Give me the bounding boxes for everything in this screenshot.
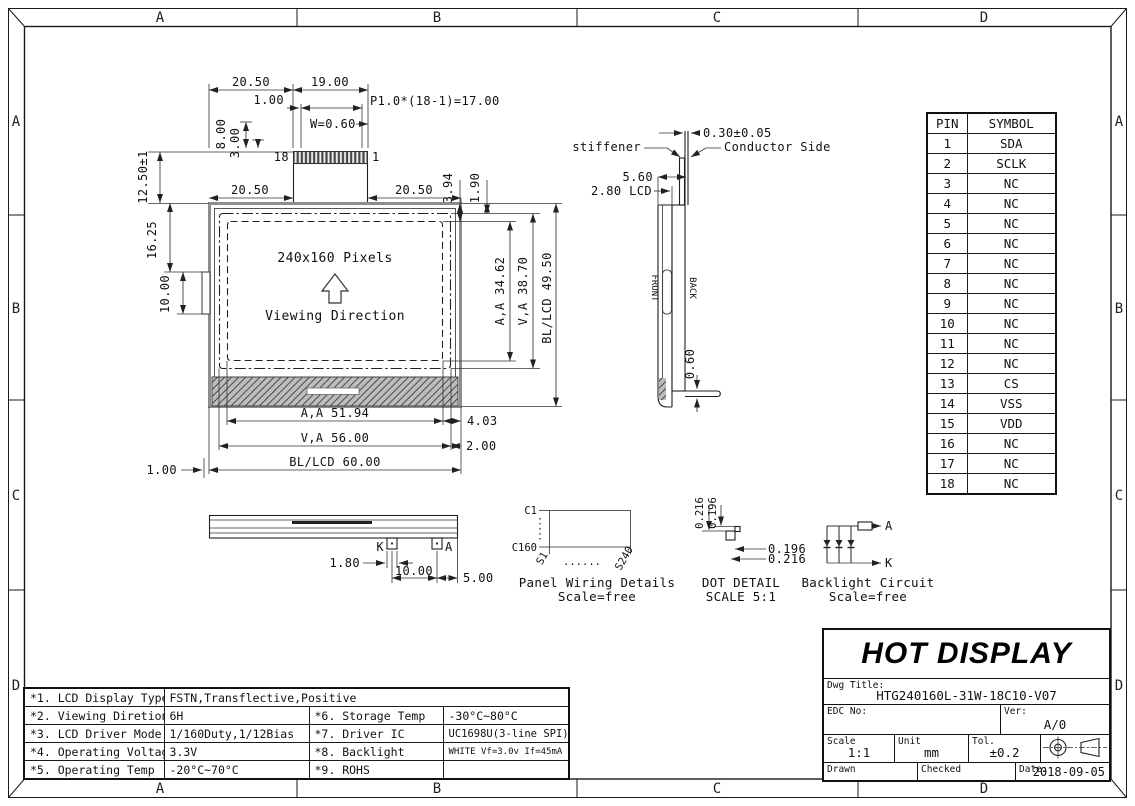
led-icons [824, 540, 855, 548]
wiring-c160-label: C160 [512, 542, 537, 554]
pin-number-cell: 7 [927, 254, 967, 274]
spec-value-cell: 6H [164, 707, 309, 725]
pin-symbol-cell: SCLK [967, 154, 1056, 174]
drawing-sheet: A B C D A B C D A B C D A B C D [0, 0, 1135, 806]
dim-20-50-mid-left: 20.50 [231, 183, 269, 197]
pin-table-row: 14VSS [927, 394, 1056, 414]
zone-label-top-b: B [433, 10, 441, 26]
dim-8-00: 8.00 [214, 119, 228, 150]
checked-cell: Checked [917, 763, 1015, 780]
pin-table-row: 12NC [927, 354, 1056, 374]
zone-label-right-c: C [1115, 488, 1123, 504]
edc-ver-row: EDC No: Ver: A/0 [824, 705, 1109, 735]
pin-number-cell: 15 [927, 414, 967, 434]
pin-table-row: 17NC [927, 454, 1056, 474]
resistor-icon [858, 522, 872, 530]
cathode-label: K [376, 540, 384, 554]
pin-table-row: 11NC [927, 334, 1056, 354]
dim-5-60: 5.60 [623, 170, 654, 184]
pin-number-cell: 12 [927, 354, 967, 374]
pin-symbol-cell: NC [967, 194, 1056, 214]
spec-value-cell [443, 761, 569, 780]
dim-1-00-top: 1.00 [254, 93, 285, 107]
pin-number-cell: 10 [927, 314, 967, 334]
dim-10-00-left: 10.00 [158, 275, 172, 313]
zone-label-bottom-b: B [433, 781, 441, 797]
pin-number-cell: 4 [927, 194, 967, 214]
pin-number-cell: 17 [927, 454, 967, 474]
pin-symbol-cell: NC [967, 294, 1056, 314]
pin-symbol-cell: NC [967, 234, 1056, 254]
spec-table: *1. LCD Display TypeFSTN,Transflective,P… [23, 687, 570, 780]
dim-10-00-bottom: 10.00 [395, 564, 433, 578]
spec-value-cell: 3.3V [164, 743, 309, 761]
drawn-label: Drawn [827, 764, 856, 775]
scale-value: 1:1 [824, 745, 894, 760]
pin-table-row: 2SCLK [927, 154, 1056, 174]
projection-symbol-cell [1040, 735, 1109, 762]
pin-symbol-cell: VDD [967, 414, 1056, 434]
pin-number-cell: 8 [927, 274, 967, 294]
circuit-anode-label: A [885, 519, 893, 533]
pin-table: PIN SYMBOL 1SDA2SCLK3NC4NC5NC6NC7NC8NC9N… [926, 112, 1057, 495]
zone-label-right-a: A [1115, 114, 1124, 130]
date-value: 2018-09-05 [1033, 765, 1105, 779]
scale-cell: Scale 1:1 [824, 735, 894, 762]
company-name: HOT DISPLAY [824, 630, 1109, 679]
pin-symbol-cell: NC [967, 314, 1056, 334]
wiring-dots: ...... [563, 556, 601, 568]
backlight-circuit-caption: Backlight Circuit [801, 575, 934, 590]
spec-table-row: *1. LCD Display TypeFSTN,Transflective,P… [24, 688, 569, 707]
pin-number-cell: 1 [927, 134, 967, 154]
scale-unit-tol-row: Scale 1:1 Unit mm Tol. ±0.2 [824, 735, 1109, 763]
pin-header: PIN [927, 113, 967, 134]
pin-1-label: 1 [372, 150, 380, 164]
pin-table-row: 7NC [927, 254, 1056, 274]
dot-detail: 0.216 0.196 0.196 0.216 DOT DETAIL SCALE… [694, 497, 806, 604]
pin-number-cell: 5 [927, 214, 967, 234]
pin-symbol-cell: NC [967, 274, 1056, 294]
pin-number-cell: 16 [927, 434, 967, 454]
panel-wiring-scale: Scale=free [558, 589, 636, 604]
zone-label-bottom-a: A [156, 781, 165, 797]
pin-number-cell: 2 [927, 154, 967, 174]
zone-label-right-d: D [1115, 678, 1123, 694]
pin-table-row: 16NC [927, 434, 1056, 454]
spec-value-cell: UC1698U(3-line SPI) [443, 725, 569, 743]
spec-value-cell: 1/160Duty,1/12Bias [164, 725, 309, 743]
pin-symbol-cell: NC [967, 254, 1056, 274]
dim-bl-60-00: BL/LCD 60.00 [289, 455, 381, 469]
pin-number-cell: 18 [927, 474, 967, 495]
dim-1-80: 1.80 [330, 556, 361, 570]
pin-number-cell: 3 [927, 174, 967, 194]
pin-table-row: 9NC [927, 294, 1056, 314]
zone-label-left-a: A [12, 114, 21, 130]
anode-label: A [445, 540, 453, 554]
version-label: Ver: [1004, 706, 1027, 717]
pin-number-cell: 11 [927, 334, 967, 354]
zone-label-left-b: B [12, 301, 20, 317]
viewing-direction-label: Viewing Direction [265, 309, 405, 324]
pin-table-row: 8NC [927, 274, 1056, 294]
stiffener-label: stiffener [572, 140, 641, 154]
dim-12-50: 12.50±1 [136, 150, 150, 203]
pin-table-row: 6NC [927, 234, 1056, 254]
spec-label-cell: *1. LCD Display Type [24, 688, 164, 707]
dot-detail-scale: SCALE 5:1 [706, 589, 776, 604]
pin-table-row: 18NC [927, 474, 1056, 495]
spec-label-cell: *8. Backlight [309, 743, 443, 761]
date-cell: Date: 2018-09-05 [1015, 763, 1109, 780]
backlight-circuit: A K Backlight Circuit Scale=free [801, 519, 934, 604]
pin-number-cell: 13 [927, 374, 967, 394]
spec-label-cell: *4. Operating Voltage [24, 743, 164, 761]
spec-label-cell: *9. ROHS [309, 761, 443, 780]
panel-wiring-caption: Panel Wiring Details [519, 575, 676, 590]
dim-19-00: 19.00 [311, 75, 349, 89]
spec-label-cell: *7. Driver IC [309, 725, 443, 743]
pin-symbol-cell: VSS [967, 394, 1056, 414]
dwg-title-row: Dwg Title: HTG240160L-31W-18C10-V07 [824, 679, 1109, 705]
zone-label-left-d: D [12, 678, 20, 694]
zone-label-top-c: C [713, 10, 721, 26]
unit-value: mm [895, 745, 968, 760]
pin-symbol-cell: NC [967, 174, 1056, 194]
dim-16-25: 16.25 [145, 221, 159, 259]
dim-20-50-mid-right: 20.50 [395, 183, 433, 197]
pin-table-row: 1SDA [927, 134, 1056, 154]
pin-table-row: 5NC [927, 214, 1056, 234]
dot-detail-caption: DOT DETAIL [702, 575, 780, 590]
dim-1-00-bottom: 1.00 [147, 463, 178, 477]
spec-table-row: *3. LCD Driver Mode1/160Duty,1/12Bias*7.… [24, 725, 569, 743]
pin-symbol-cell: NC [967, 454, 1056, 474]
pin-symbol-cell: NC [967, 354, 1056, 374]
dim-va-56-00: V,A 56.00 [301, 431, 370, 445]
dim-20-50-top-left: 20.50 [232, 75, 270, 89]
dim-1-90: 1.90 [468, 173, 482, 204]
dim-aa-34-62: A,A 34.62 [493, 257, 507, 326]
pin-number-cell: 14 [927, 394, 967, 414]
front-side-label: FRONT [649, 274, 659, 302]
dim-w-0-60: W=0.60 [310, 117, 356, 131]
pin-symbol-cell: NC [967, 214, 1056, 234]
dim-bl-49-50: BL/LCD 49.50 [540, 252, 554, 344]
spec-value-cell: FSTN,Transflective,Positive [164, 688, 569, 707]
spec-table-row: *5. Operating Temp-20°C~70°C*9. ROHS [24, 761, 569, 780]
pin-table-header-row: PIN SYMBOL [927, 113, 1056, 134]
pin-symbol-cell: CS [967, 374, 1056, 394]
wiring-c1-label: C1 [524, 505, 537, 517]
checked-label: Checked [921, 764, 961, 775]
spec-label-cell: *6. Storage Temp [309, 707, 443, 725]
pin-number-cell: 6 [927, 234, 967, 254]
pin-table-row: 10NC [927, 314, 1056, 334]
pin-table-row: 3NC [927, 174, 1056, 194]
dim-5-00: 5.00 [463, 571, 494, 585]
pixels-label: 240x160 Pixels [277, 251, 392, 266]
zone-label-left-c: C [12, 488, 20, 504]
spec-label-cell: *3. LCD Driver Mode [24, 725, 164, 743]
pin-table-row: 13CS [927, 374, 1056, 394]
dim-4-03: 4.03 [467, 414, 498, 428]
dim-va-38-70: V,A 38.70 [516, 257, 530, 326]
dim-2-80-lcd: 2.80 LCD [591, 184, 652, 198]
dim-pitch: P1.0*(18-1)=17.00 [370, 94, 500, 108]
spec-value-cell: -20°C~70°C [164, 761, 309, 780]
pin-symbol-cell: NC [967, 434, 1056, 454]
dim-3-94: 3.94 [441, 173, 455, 204]
zone-label-bottom-d: D [980, 781, 988, 797]
dwg-title-label: Dwg Title: [827, 680, 884, 691]
dim-0-60: 0.60 [683, 349, 697, 380]
spec-label-cell: *5. Operating Temp [24, 761, 164, 780]
pin-table-body: 1SDA2SCLK3NC4NC5NC6NC7NC8NC9NC10NC11NC12… [927, 134, 1056, 495]
unit-cell: Unit mm [894, 735, 968, 762]
circuit-cathode-label: K [885, 556, 893, 570]
front-view-dimensions: 20.50 19.00 1.00 P1.0*(18-1)=17.00 W=0.6… [136, 75, 562, 478]
conductor-side-label: Conductor Side [724, 140, 831, 154]
wiring-s240-label: S240 [613, 545, 636, 573]
side-view: 0.30±0.05 stiffener Conductor Side 5.60 … [572, 126, 830, 412]
drawn-cell: Drawn [824, 763, 917, 780]
dot-dim-h-0216: 0.216 [768, 552, 806, 566]
title-block: HOT DISPLAY Dwg Title: HTG240160L-31W-18… [822, 628, 1111, 782]
pin-symbol-cell: NC [967, 474, 1056, 495]
edc-no-cell: EDC No: [824, 705, 1000, 734]
zone-label-right-b: B [1115, 301, 1123, 317]
dim-0-30: 0.30±0.05 [703, 126, 772, 140]
drawn-checked-date-row: Drawn Checked Date: 2018-09-05 [824, 763, 1109, 780]
zone-label-bottom-c: C [713, 781, 721, 797]
version-value: A/0 [1001, 717, 1109, 732]
projection-symbol-icon [1041, 735, 1109, 760]
pin-symbol-cell: NC [967, 334, 1056, 354]
spec-value-cell: -30°C~80°C [443, 707, 569, 725]
panel-wiring-details: C1 C160 S1 S240 ...... Panel Wiring Deta… [512, 505, 676, 604]
viewing-direction-arrow-icon [322, 274, 348, 303]
dim-aa-51-94: A,A 51.94 [301, 406, 370, 420]
dot-dim-v-0196: 0.196 [707, 497, 719, 529]
zone-label-top-a: A [156, 10, 165, 26]
dim-3-00: 3.00 [228, 128, 242, 159]
spec-value-cell: WHITE Vf=3.0v If=45mA [443, 743, 569, 761]
version-cell: Ver: A/0 [1000, 705, 1109, 734]
edc-no-label: EDC No: [827, 706, 867, 717]
spec-label-cell: *2. Viewing Diretion [24, 707, 164, 725]
spec-table-body: *1. LCD Display TypeFSTN,Transflective,P… [24, 688, 569, 779]
tolerance-cell: Tol. ±0.2 [968, 735, 1040, 762]
pin-table-row: 15VDD [927, 414, 1056, 434]
backlight-circuit-scale: Scale=free [829, 589, 907, 604]
back-side-label: BACK [687, 277, 697, 299]
pin-number-cell: 9 [927, 294, 967, 314]
symbol-header: SYMBOL [967, 113, 1056, 134]
dim-2-00: 2.00 [466, 439, 497, 453]
spec-table-row: *4. Operating Voltage3.3V*8. BacklightWH… [24, 743, 569, 761]
pin-table-row: 4NC [927, 194, 1056, 214]
pin-symbol-cell: SDA [967, 134, 1056, 154]
bottom-view: K A 1.80 10.00 5.00 [210, 516, 494, 586]
dot-dim-v-0216: 0.216 [694, 497, 706, 529]
tolerance-value: ±0.2 [969, 745, 1040, 760]
zone-label-top-d: D [980, 10, 988, 26]
pin-18-label: 18 [274, 150, 289, 164]
spec-table-row: *2. Viewing Diretion6H*6. Storage Temp-3… [24, 707, 569, 725]
